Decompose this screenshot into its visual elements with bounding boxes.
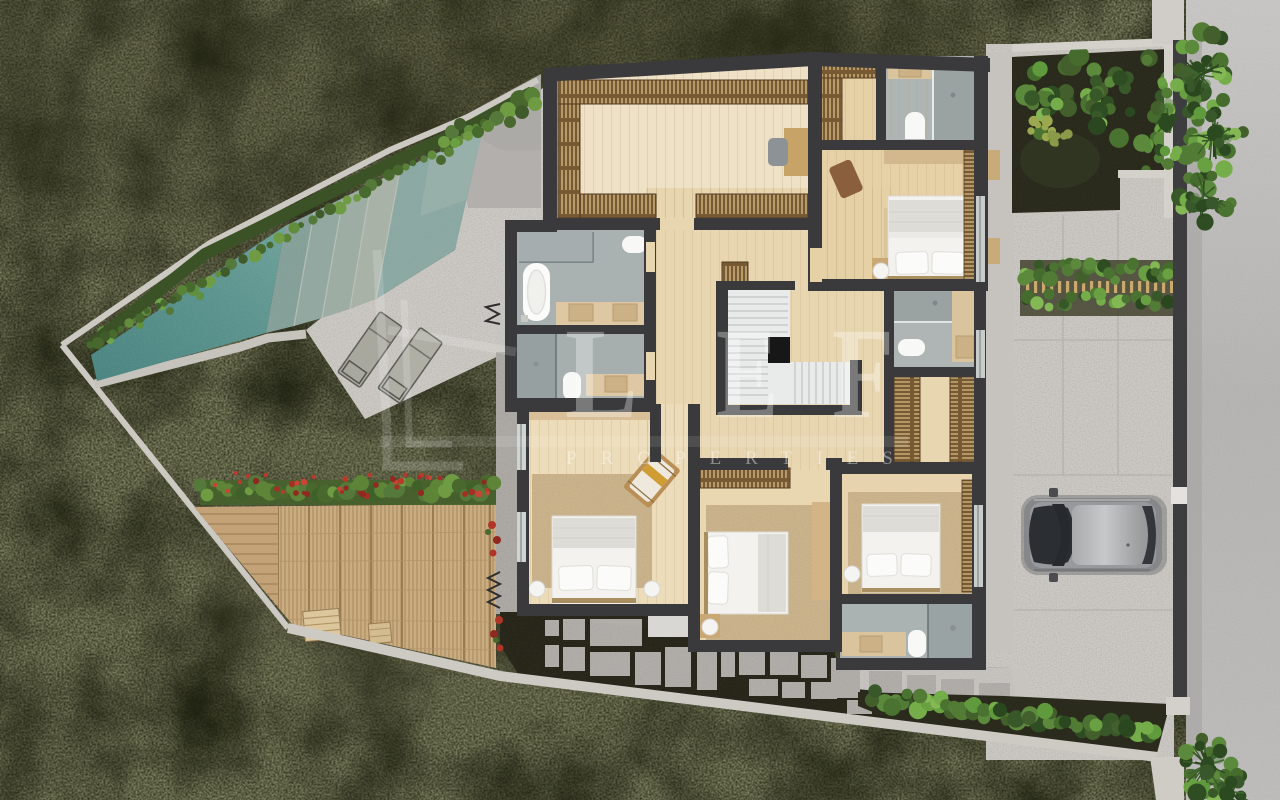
svg-text:L: L (565, 301, 638, 445)
svg-text:E: E (716, 301, 778, 446)
svg-text:F: F (832, 302, 894, 446)
svg-text:PROPERTIES: PROPERTIES (566, 448, 917, 469)
